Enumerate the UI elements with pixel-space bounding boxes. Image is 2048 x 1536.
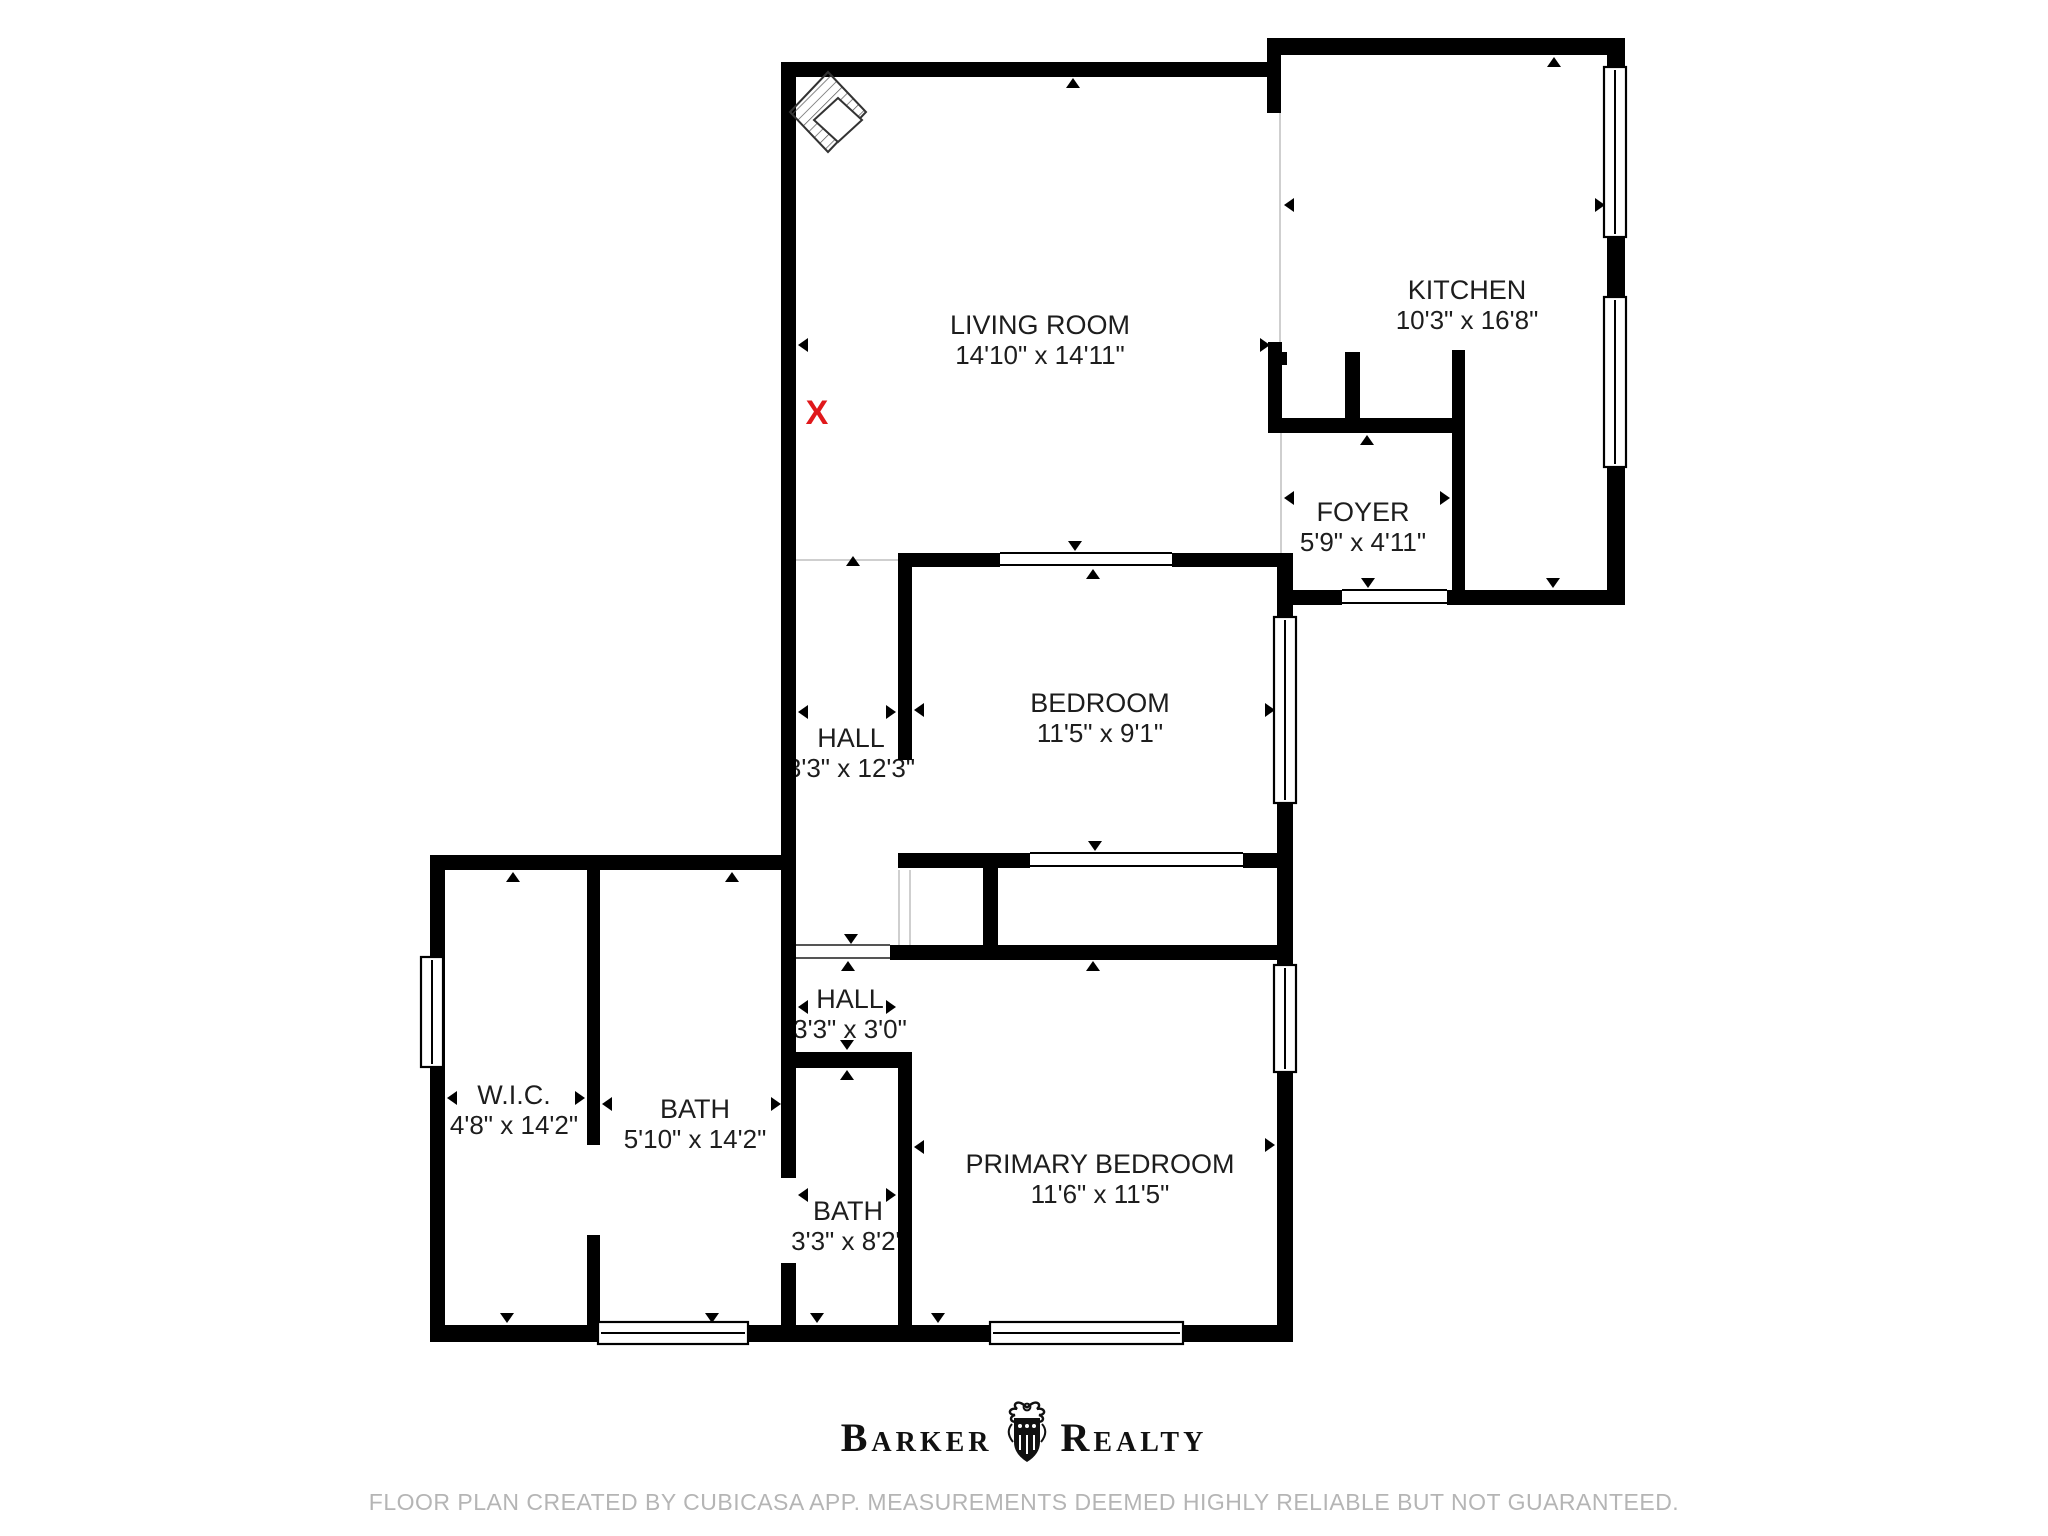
wall-segment [898,853,1030,868]
wall-segment [1277,567,1290,590]
room-label-foyer: FOYER [1316,497,1409,527]
dimension-arrow-icon [798,705,808,719]
room-dims-foyer: 5'9" x 4'11" [1300,527,1426,557]
dimension-arrow-icon [886,705,896,719]
brand-name-left: Barker [841,1418,993,1458]
wall-segment [1447,590,1625,605]
dimension-arrow-icon [798,338,808,352]
dimension-arrow-icon [1547,57,1561,67]
wall-segment [430,855,796,870]
room-dims-bath-small: 3'3" x 8'2" [791,1226,905,1256]
dimension-arrow-icon [447,1091,457,1105]
wall-segment [1607,38,1625,67]
dimension-arrow-icon [1440,491,1450,505]
wall-segment [898,553,912,760]
room-labels: LIVING ROOM 14'10" x 14'11" KITCHEN 10'3… [450,275,1538,1209]
wall-segment [781,1263,796,1342]
dimension-arrow-icon [1361,578,1375,588]
walls-layer [430,38,1625,1342]
dimension-arrow-icon [1066,78,1080,88]
floor-plan-drawing: HALL 3'3" x 12'3" HALL 3'3" x 3'0" BATH … [0,0,2048,1536]
wall-segment [1267,55,1281,113]
wall-segment [1267,38,1625,55]
dimension-arrow-icon [844,934,858,944]
footer: Barker Realty FLOOR PLAN CREATED BY CUBI… [0,1398,2048,1516]
room-boundary-lines [796,113,1281,945]
dimension-arrow-icon [841,961,855,971]
dimension-arrow-icon [506,872,520,882]
room-label-kitchen: KITCHEN [1408,275,1527,305]
dimension-arrow-icon [575,1091,585,1105]
room-dims-kitchen: 10'3" x 16'8" [1396,305,1539,335]
wall-segment [1607,467,1625,605]
dimension-arrow-icon [1088,841,1102,851]
dimension-arrow-icon [1284,491,1294,505]
room-label-bath-small: BATH [813,1196,883,1226]
room-dims-bedroom: 11'5" x 9'1" [1037,718,1163,748]
room-dims-primary-bedroom: 11'6" x 11'5" [1031,1179,1170,1209]
dimension-arrow-icon [771,1097,781,1111]
wall-segment [1452,350,1465,605]
dimension-arrow-icon [840,1040,854,1050]
wall-segment [1345,352,1360,418]
brand-name-right: Realty [1061,1418,1208,1458]
dimension-arrow-icon [1546,578,1560,588]
disclaimer-text: FLOOR PLAN CREATED BY CUBICASA APP. MEAS… [0,1489,2048,1516]
dimension-arrow-icon [810,1313,824,1323]
dimension-arrow-icon [1068,541,1082,551]
dimension-arrow-icon [798,1188,808,1202]
wall-segment [587,870,600,1145]
wall-segment [1277,803,1293,965]
room-label-bedroom: BEDROOM [1030,688,1170,718]
wall-segment [781,1052,912,1068]
wall-segment [1277,1072,1293,1342]
room-label-bath-large: BATH [660,1094,730,1124]
floor-plan-page: HALL 3'3" x 12'3" HALL 3'3" x 3'0" BATH … [0,0,2048,1536]
dimension-arrow-icon [1086,569,1100,579]
wall-segment [1172,553,1287,567]
wall-segment [1268,418,1465,433]
room-label-hall-upper: HALL [817,723,885,753]
dimension-arrow-icon [602,1097,612,1111]
barker-realty-crest-icon [1005,1398,1049,1477]
dimension-arrow-icon [914,703,924,717]
dimension-arrow-icon [886,1188,896,1202]
room-dims-hall-upper: 3'3" x 12'3" [787,753,915,783]
dimension-arrow-icon [1265,1138,1275,1152]
room-dims-wic: 4'8" x 14'2" [450,1110,578,1140]
dimension-arrow-icon [1284,198,1294,212]
dimension-arrow-icon [798,1000,808,1014]
compass-rose-icon [790,72,866,152]
room-labels-under: HALL 3'3" x 12'3" HALL 3'3" x 3'0" BATH … [787,723,915,1256]
wall-segment [898,1052,912,1342]
wall-segment [430,855,445,1342]
room-label-wic: W.I.C. [477,1080,551,1110]
dimension-arrow-icon [1086,961,1100,971]
room-label-hall-lower: HALL [816,984,884,1014]
dimension-arrow-icon [725,872,739,882]
dimension-arrows-layer [447,57,1605,1323]
room-dims-bath-large: 5'10" x 14'2" [624,1124,767,1154]
dimension-arrow-icon [840,1070,854,1080]
wall-segment [1277,352,1287,365]
room-label-primary-bedroom: PRIMARY BEDROOM [965,1149,1234,1179]
wall-segment [898,553,1000,567]
dimension-arrow-icon [914,1140,924,1154]
dimension-arrow-icon [1360,435,1374,445]
room-dims-hall-lower: 3'3" x 3'0" [793,1014,907,1044]
wall-segment [890,945,1293,960]
wall-segment [983,865,998,947]
wall-segment [1607,237,1625,297]
wall-segment [781,62,796,1178]
dimension-arrow-icon [931,1313,945,1323]
dimension-arrow-icon [500,1313,514,1323]
brand-logo: Barker Realty [0,1398,2048,1477]
room-dims-living-room: 14'10" x 14'11" [955,340,1125,370]
wall-segment [781,62,1281,77]
dimension-arrow-icon [886,1000,896,1014]
red-x-marker: X [806,394,829,432]
room-label-living-room: LIVING ROOM [950,310,1130,340]
